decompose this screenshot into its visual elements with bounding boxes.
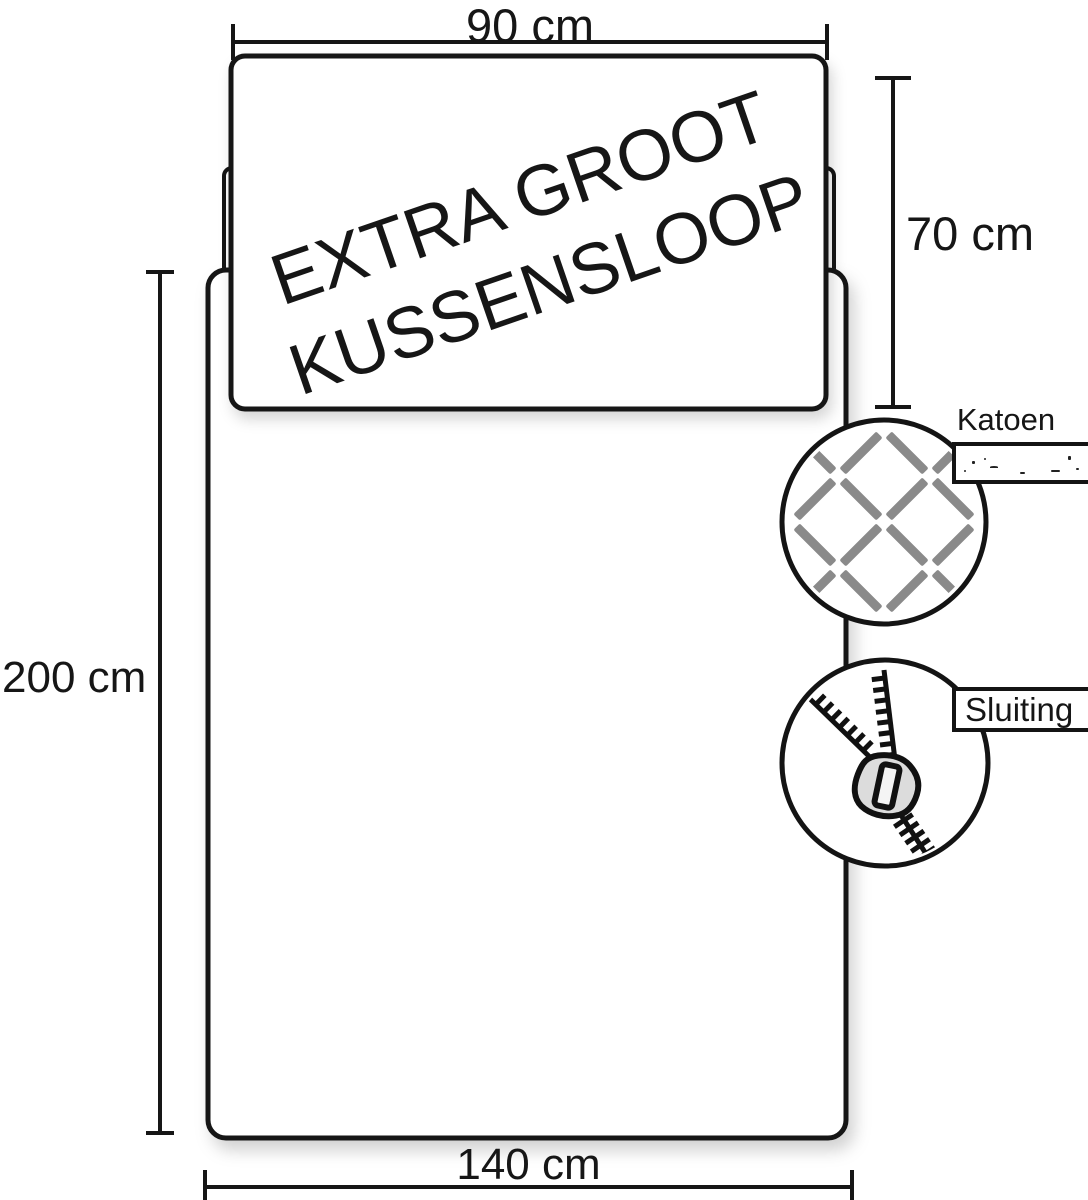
dimension-left — [146, 272, 174, 1133]
material-label: Katoen — [950, 402, 1062, 438]
bedding-size-diagram: 90 cm 70 cm 200 cm 140 cm EXTRA GROOT KU… — [0, 0, 1088, 1200]
closure-box: Sluiting — [952, 687, 1088, 732]
material-box — [952, 442, 1088, 484]
dimension-label-pillow-height: 70 cm — [906, 206, 1034, 261]
dimension-label-duvet-width: 140 cm — [205, 1140, 852, 1190]
closure-label: Sluiting — [965, 691, 1073, 729]
dimension-label-duvet-length: 200 cm — [2, 653, 146, 703]
dimension-label-pillow-width: 90 cm — [233, 0, 827, 53]
